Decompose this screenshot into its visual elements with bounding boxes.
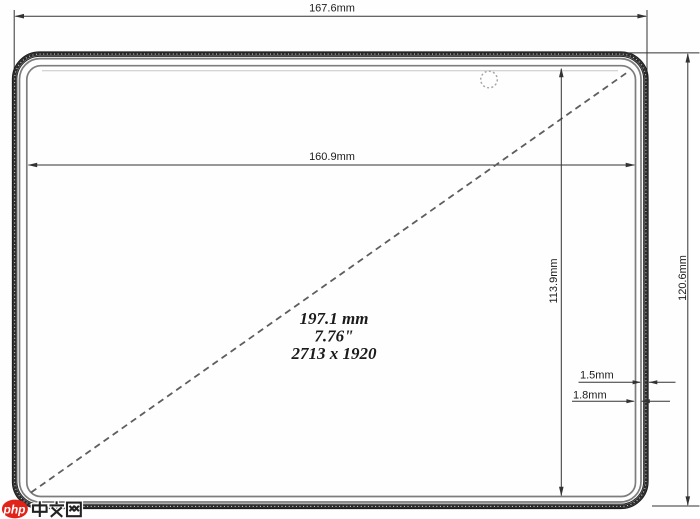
svg-text:160.9mm: 160.9mm <box>309 151 355 163</box>
svg-text:1.8mm: 1.8mm <box>573 390 607 402</box>
svg-text:1.5mm: 1.5mm <box>580 370 614 382</box>
svg-text:php: php <box>3 503 26 517</box>
svg-text:120.6mm: 120.6mm <box>677 255 689 301</box>
svg-text:2713 x 1920: 2713 x 1920 <box>291 344 378 363</box>
svg-text:113.9mm: 113.9mm <box>548 258 560 303</box>
svg-text:167.6mm: 167.6mm <box>309 3 355 15</box>
svg-text:7.76": 7.76" <box>314 327 353 346</box>
svg-text:197.1 mm: 197.1 mm <box>300 309 369 328</box>
